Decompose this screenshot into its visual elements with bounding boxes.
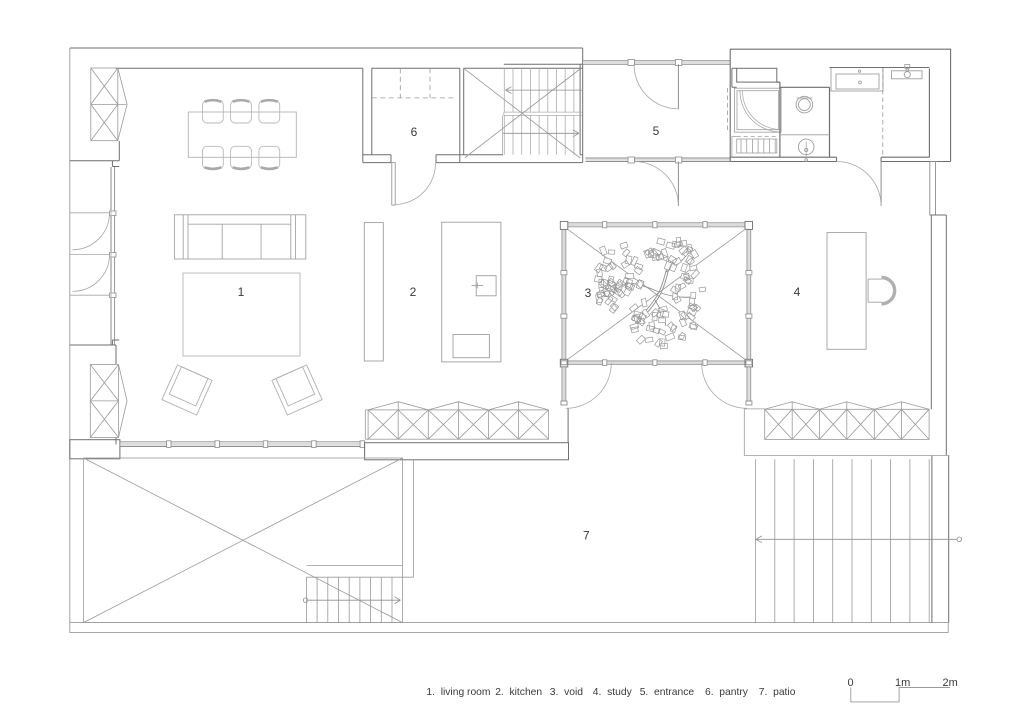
svg-text:2. kitchen: 2. kitchen (495, 687, 542, 698)
svg-text:7. patio: 7. patio (759, 687, 796, 698)
svg-text:1: 1 (238, 285, 245, 299)
svg-text:3. void: 3. void (550, 687, 583, 698)
svg-text:0: 0 (848, 677, 854, 689)
svg-text:4. study: 4. study (593, 687, 633, 698)
svg-text:7: 7 (583, 529, 590, 543)
svg-text:6. pantry: 6. pantry (705, 687, 749, 698)
svg-text:5. entrance: 5. entrance (640, 687, 695, 698)
svg-text:4: 4 (794, 285, 801, 299)
svg-text:2: 2 (410, 285, 417, 299)
svg-text:3: 3 (585, 286, 592, 300)
svg-text:5: 5 (653, 124, 660, 138)
svg-text:1. living room: 1. living room (426, 687, 490, 698)
svg-text:6: 6 (411, 125, 418, 139)
